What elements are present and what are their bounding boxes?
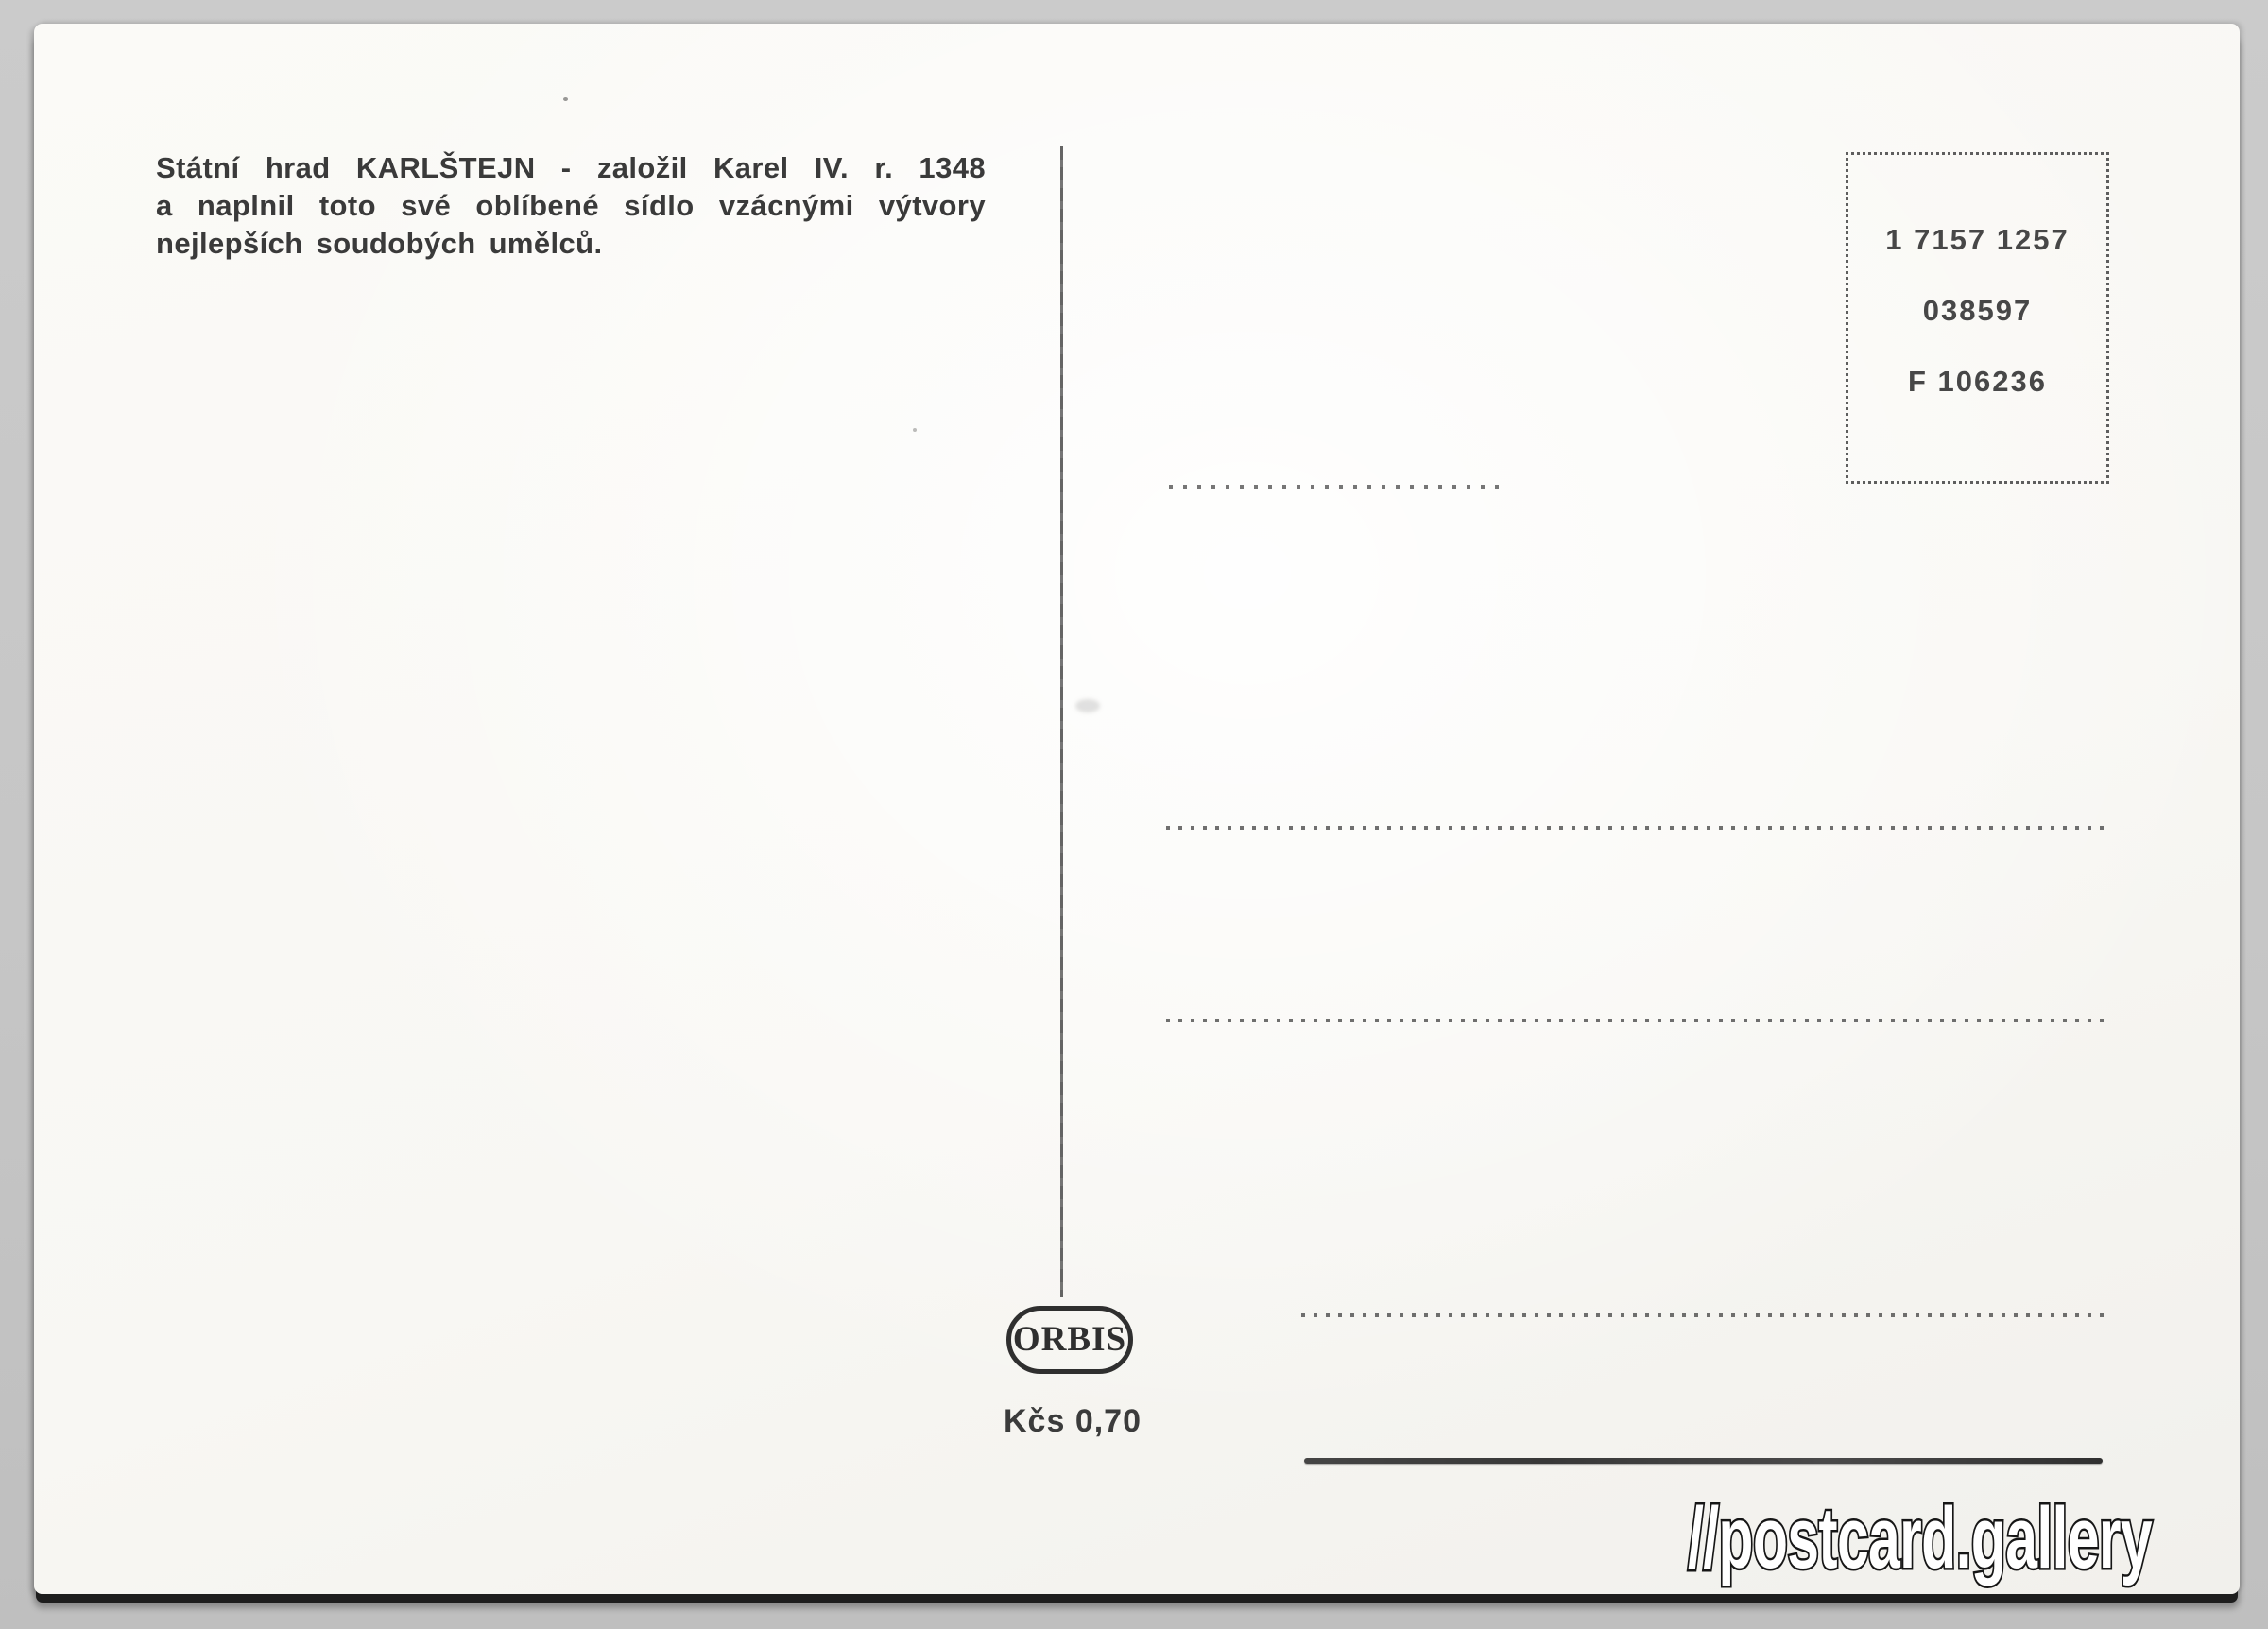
paper-speck xyxy=(563,97,568,101)
stamp-code-1: 1 7157 1257 xyxy=(1885,223,2069,257)
address-line-short xyxy=(1169,485,1507,489)
stamp-code-2: 038597 xyxy=(1923,294,2032,328)
caption-block: Státní hrad KARLŠTEJN - založil Karel IV… xyxy=(156,149,986,263)
center-divider-line xyxy=(1060,146,1063,1297)
address-line-3 xyxy=(1301,1313,2106,1317)
postcard-back: Státní hrad KARLŠTEJN - založil Karel IV… xyxy=(34,24,2240,1594)
caption-line-1: Státní hrad KARLŠTEJN - založil Karel IV… xyxy=(156,149,986,187)
caption-line-2: a naplnil toto své oblíbené sídlo vzácný… xyxy=(156,187,986,225)
orbis-logo: ORBIS xyxy=(1006,1306,1133,1374)
stamp-box: 1 7157 1257 038597 F 106236 xyxy=(1846,152,2109,484)
address-line-2 xyxy=(1166,1019,2107,1022)
address-line-1 xyxy=(1166,826,2107,830)
paper-speck xyxy=(1075,699,1100,712)
stamp-code-3: F 106236 xyxy=(1908,365,2047,399)
caption-line-3: nejlepších soudobých umělců. xyxy=(156,225,986,263)
orbis-logo-text: ORBIS xyxy=(1013,1319,1126,1360)
address-line-solid xyxy=(1304,1458,2103,1464)
scan-background: { "card": { "caption": { "lines": [ "Stá… xyxy=(0,0,2268,1629)
gallery-watermark: //postcard.gallery xyxy=(1688,1495,2152,1582)
paper-speck xyxy=(913,428,917,432)
price-label: Kčs 0,70 xyxy=(997,1403,1148,1440)
